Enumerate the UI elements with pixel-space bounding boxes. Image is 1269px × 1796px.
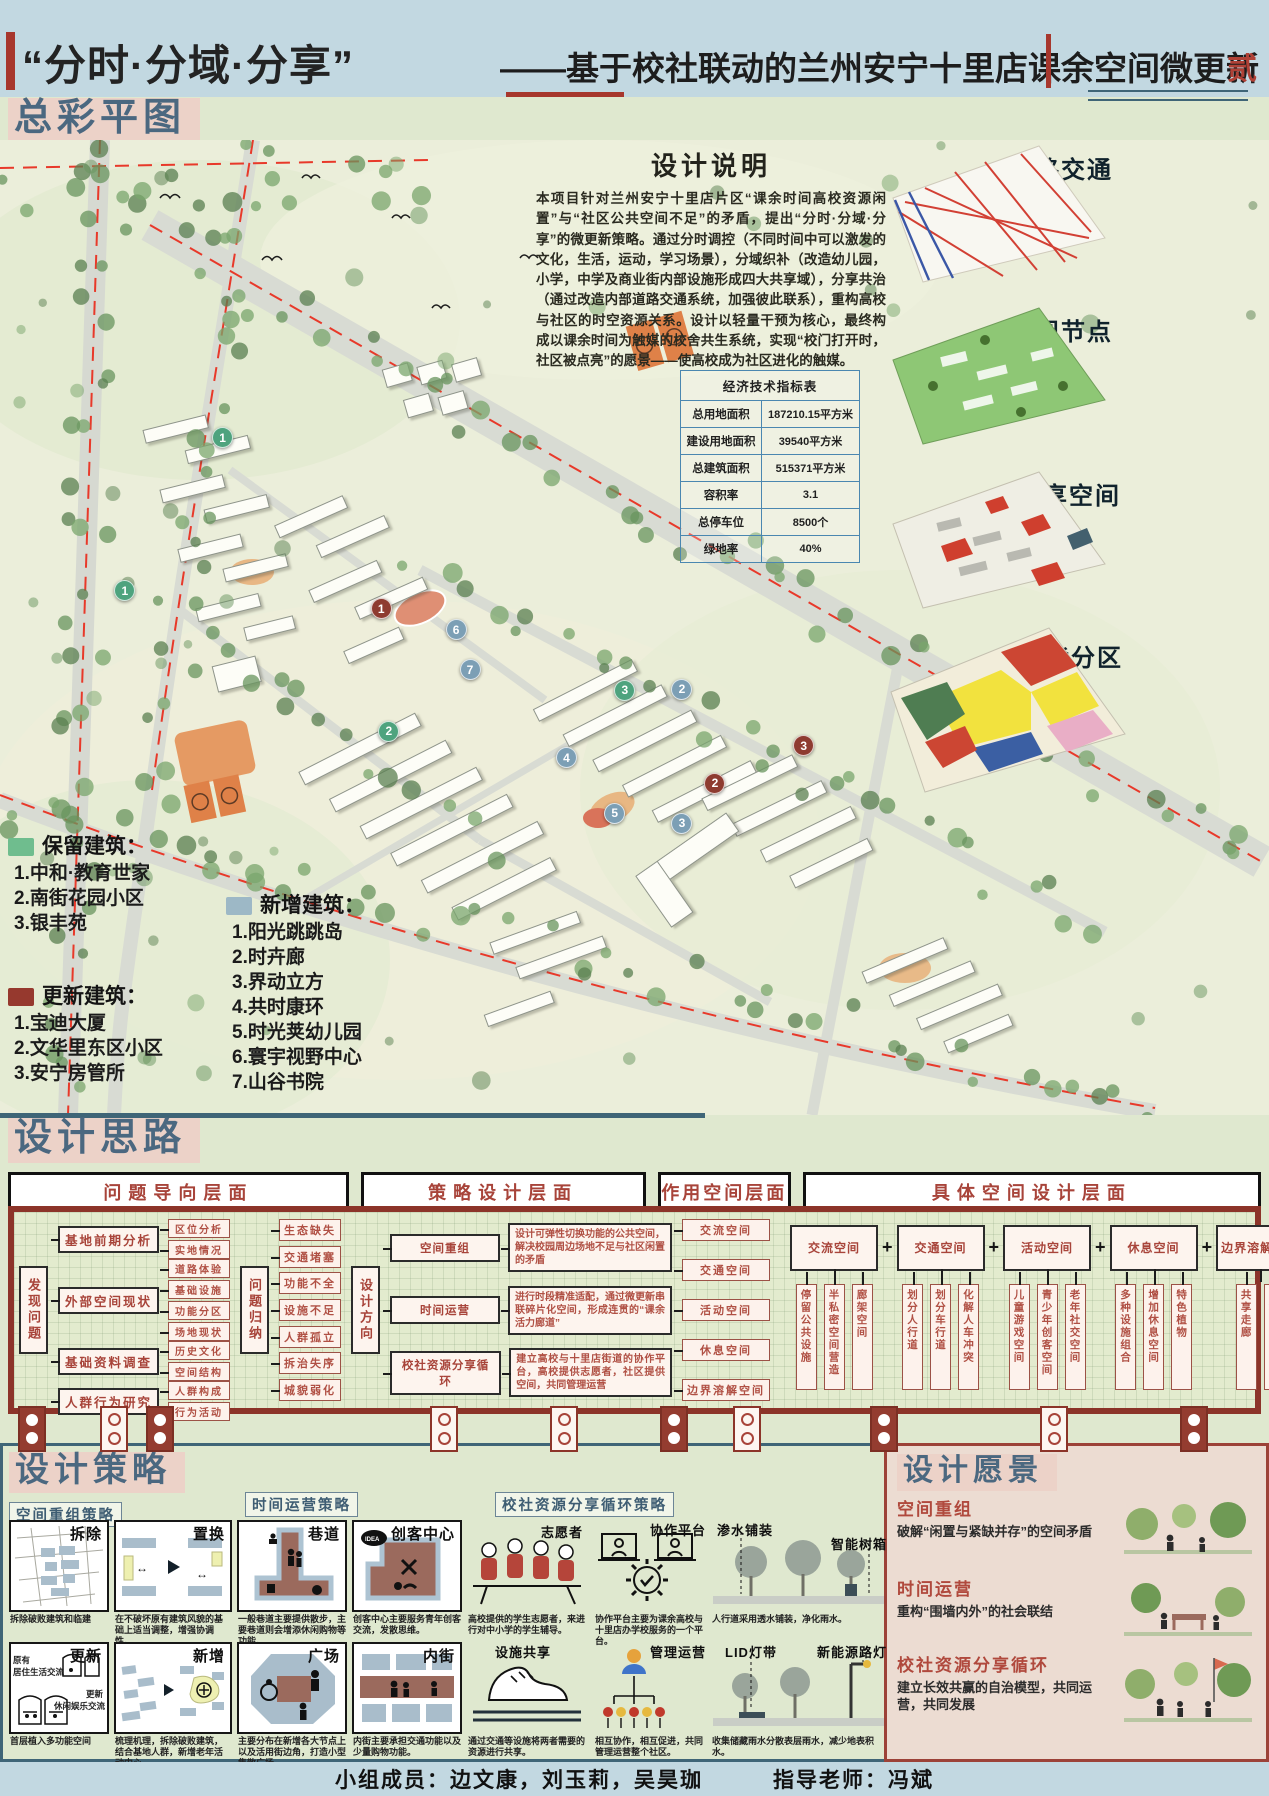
flow-strategy-desc: 设计可弹性切换功能的公共空间，解决校园周边场地不足与社区闲置的矛盾: [508, 1223, 672, 1272]
credits-bar: 小组成员：边文康，刘玉莉，吴昊珈 指导老师：冯斌: [0, 1762, 1269, 1796]
flow-family-label: 边界溶解空间: [1216, 1225, 1269, 1271]
plus-sign: +: [989, 1237, 1000, 1258]
svg-text:IDEA: IDEA: [365, 1537, 380, 1543]
title-accent-bar: [6, 32, 15, 90]
flow-group-item: 行为活动: [168, 1402, 230, 1421]
ribbon-tab: [100, 1406, 128, 1452]
card-demolish: 拆除: [9, 1520, 109, 1612]
plan-marker-new: 3: [671, 813, 692, 834]
vision-item: 时间运营 重构“围墙内外”的社会联结: [897, 1580, 1258, 1620]
ribbon-tab: [1180, 1406, 1208, 1452]
ribbon-tab: [430, 1406, 458, 1452]
flow-problem: 设施不足: [279, 1299, 341, 1321]
page-number-badge: 贰: [1227, 44, 1257, 88]
flow-group-item: 区位分析: [168, 1219, 230, 1238]
flow-family-item: 停留公共设施: [796, 1284, 817, 1390]
card-caption: 人行道采用透水铺装，净化雨水。: [711, 1612, 889, 1642]
advisor: 指导老师：冯斌: [773, 1764, 934, 1794]
flow-family-item: 青少年创客空间: [1037, 1284, 1058, 1390]
flow-spaces: 交流空间 交通空间 活动空间 休息空间 边界溶解空间: [682, 1219, 770, 1401]
street-section-1: 渗水铺装 智能树箱: [711, 1520, 889, 1612]
flow-family-item: 增加休息空间: [1143, 1284, 1164, 1390]
flow-family-item: 口袋广场: [1264, 1284, 1269, 1390]
card-title: 广场: [308, 1645, 340, 1666]
bottom-section: 设计策略 空间重组策略 时间运营策略 校社资源分享循环策略 拆除: [0, 1443, 1269, 1762]
flow-summarize: 问题归纳: [240, 1266, 269, 1354]
flow-space: 交流空间: [682, 1219, 770, 1241]
sublabel-time-operation: 时间运营策略: [245, 1492, 358, 1517]
card-caption: 梳理机理，拆除破败建筑，结合基地人群，新增老年活动中心。: [114, 1734, 232, 1763]
card-title: 创客中心: [391, 1523, 455, 1544]
treebox-label: 智能树箱: [831, 1534, 887, 1553]
card-title: 内街: [423, 1645, 455, 1666]
plan-marker-renew: 3: [793, 735, 814, 756]
management-illustration: 管理运营: [594, 1642, 706, 1734]
plan-marker-renew: 2: [704, 773, 725, 794]
card-renew: 更新 原有 居住生活交流 更新 休闲娱乐交流: [9, 1642, 109, 1734]
concept-flow-diagram: 发现问题 基地前期分析 区位分析 实地情况 外部空间现状 道路体验 基础设施 功…: [8, 1206, 1261, 1414]
card-title: 拆除: [70, 1523, 102, 1544]
ribbon-tab: [870, 1406, 898, 1452]
plan-marker-retain: 1: [114, 580, 135, 601]
volunteer-illustration: 志愿者: [467, 1520, 589, 1612]
flow-group-item: 人群构成: [168, 1381, 230, 1400]
flow-discover: 发现问题: [19, 1266, 48, 1354]
card-title: 新增: [193, 1645, 225, 1666]
ribbon-tab: [660, 1406, 688, 1452]
plan-marker-retain: 1: [212, 427, 233, 448]
flow-problem: 拆治失序: [279, 1352, 341, 1374]
flow-family-item: 半私密空间营造: [824, 1284, 845, 1390]
card-alley: 巷道: [237, 1520, 347, 1612]
strategy-panel: 设计策略 空间重组策略 时间运营策略 校社资源分享循环策略 拆除: [0, 1443, 884, 1762]
card-caption: 创客中心主要服务青年创客交流，发散思维。: [352, 1612, 462, 1642]
ribbon-tab: [18, 1406, 46, 1452]
ribbon-tab: [146, 1406, 174, 1452]
card-caption: 相互协作，相互促进，共同管理运营整个社区。: [594, 1734, 706, 1763]
plan-marker-new: 7: [460, 659, 481, 680]
plan-marker-new: 6: [446, 619, 467, 640]
plan-marker-retain: 2: [378, 721, 399, 742]
flow-family-item: 廊架空间: [852, 1284, 873, 1390]
flow-problem: 功能不全: [279, 1272, 341, 1294]
flow-strategy-label: 校社资源分享循环: [390, 1351, 501, 1395]
card-caption: 首层植入多功能空间: [9, 1734, 109, 1763]
card-add: 新增: [114, 1642, 232, 1734]
flow-group-item: 功能分区: [168, 1301, 230, 1320]
plus-sign: +: [1202, 1237, 1213, 1258]
card-maker-center: 创客中心 IDEA: [352, 1520, 462, 1612]
flow-space: 交通空间: [682, 1259, 770, 1281]
plan-marker-new: 5: [604, 803, 625, 824]
flow-problem: 交通堵塞: [279, 1246, 341, 1268]
flow-family-item: 多种设施组合: [1115, 1284, 1136, 1390]
flow-strategy-label: 时间运营: [390, 1296, 500, 1324]
ribbon-tab: [550, 1406, 578, 1452]
card-caption: 协作平台主要为课余高校与十里店办学校服务的一个平台。: [594, 1612, 706, 1642]
card-caption: 一般巷道主要提供散步，主要巷道则会增添休闲购物等功能。: [237, 1612, 347, 1642]
title-bar: “分时·分域·分享” ——基于校社联动的兰州安宁十里店课余空间微更新 贰: [0, 30, 1269, 96]
plan-markers: 1116723243253: [0, 140, 1269, 1115]
section-header-masterplan: 总彩平图: [8, 98, 200, 143]
flow-group-item: 实地情况: [168, 1240, 230, 1259]
flow-group-item: 历史文化: [168, 1341, 230, 1360]
vision-desc: 破解“闲置与紧缺并存”的空间矛盾: [897, 1523, 1107, 1541]
title-red-vbar: [1046, 34, 1051, 88]
svg-text:↔: ↔: [136, 1561, 148, 1575]
card-caption: 通过交通等设施将两者需要的资源进行共享。: [467, 1734, 589, 1763]
title-red-underline: [506, 92, 624, 97]
card-caption: 在不破坏原有建筑风貌的基础上适当调整，增强协调性。: [114, 1612, 232, 1642]
card-caption: 拆除破败建筑和临建: [9, 1612, 109, 1642]
platform-label: 协作平台: [650, 1520, 706, 1539]
flow-family-label: 交通空间: [897, 1225, 985, 1271]
flow-family-label: 休息空间: [1110, 1225, 1198, 1271]
vision-illustration-2: [1118, 1574, 1258, 1644]
flow-problem: 生态缺失: [279, 1219, 341, 1241]
solar-label: 新能源路灯: [817, 1642, 887, 1661]
flow-family-item: 划分车行道: [930, 1284, 951, 1390]
card-replace: 置换 ↔ ↔: [114, 1520, 232, 1612]
flow-direction: 设计方向: [351, 1266, 380, 1354]
plan-marker-renew: 1: [371, 598, 392, 619]
poster-title-main: “分时·分域·分享”: [22, 32, 354, 93]
ribbon-tab: [733, 1406, 761, 1452]
facility-share-label: 设施共享: [495, 1642, 551, 1661]
flow-group-item: 空间结构: [168, 1362, 230, 1381]
flow-family-item: 老年社交空间: [1065, 1284, 1086, 1390]
card-plaza: 广场: [237, 1642, 347, 1734]
flow-groups: 基地前期分析 区位分析 实地情况 外部空间现状 道路体验 基础设施 功能分区 场…: [58, 1219, 230, 1401]
vision-illustration-3: [1118, 1650, 1258, 1736]
vision-item: 校社资源分享循环 建立长效共赢的自治模型，共同运营，共同发展: [897, 1656, 1258, 1714]
flow-families: 交流空间 停留公共设施 半私密空间营造 廊架空间 + 交通空间 划分人行道 划分…: [790, 1219, 1269, 1401]
team-members: 小组成员：边文康，刘玉莉，吴昊珈: [335, 1764, 703, 1794]
vision-desc: 建立长效共赢的自治模型，共同运营，共同发展: [897, 1679, 1107, 1714]
section-header-strategy: 设计策略: [9, 1452, 185, 1493]
flow-family-item: 化解人车冲突: [958, 1284, 979, 1390]
flow-problem: 城貌弱化: [279, 1379, 341, 1401]
flow-strategies: 空间重组 设计可弹性切换功能的公共空间，解决校园周边场地不足与社区闲置的矛盾 时…: [390, 1219, 672, 1401]
flow-group: 基础资料调查: [58, 1348, 159, 1375]
flow-family-item: 划分人行道: [902, 1284, 923, 1390]
vision-desc: 重构“围墙内外”的社会联结: [897, 1603, 1107, 1621]
flow-family-label: 交流空间: [790, 1225, 878, 1271]
permeable-label: 渗水铺装: [717, 1520, 773, 1539]
street-section-2: LID灯带 新能源路灯: [711, 1642, 889, 1734]
card-caption: 主要分布在新增各大节点上以及活用街边角，打造小型集散广场。: [237, 1734, 347, 1763]
card-caption: 收集储藏雨水分散表层雨水，减少地表积水。: [711, 1734, 889, 1763]
title-teal-underline: [1088, 90, 1248, 101]
flow-problem: 人群孤立: [279, 1326, 341, 1348]
flow-strategy-desc: 进行时段精准适配，通过微更新串联碎片化空间，形成连贯的“课余活力廊道”: [508, 1286, 672, 1335]
flow-group: 基地前期分析: [58, 1226, 159, 1253]
card-title: 更新: [70, 1645, 102, 1666]
ribbon-tab: [1040, 1406, 1068, 1452]
plan-marker-new: 4: [556, 747, 577, 768]
poster: “分时·分域·分享” ——基于校社联动的兰州安宁十里店课余空间微更新 贰 总彩平…: [0, 0, 1269, 1796]
flow-group-item: 道路体验: [168, 1259, 230, 1278]
vision-illustration-1: [1118, 1494, 1258, 1568]
card-inner-street: 内街: [352, 1642, 462, 1734]
flow-family-label: 活动空间: [1003, 1225, 1091, 1271]
flow-group: 外部空间现状: [58, 1287, 159, 1314]
platform-illustration: 协作平台: [594, 1520, 706, 1612]
flow-group-item: 基础设施: [168, 1280, 230, 1299]
management-label: 管理运营: [650, 1642, 706, 1661]
svg-text:↔: ↔: [196, 1567, 208, 1581]
poster-title-sub: ——基于校社联动的兰州安宁十里店课余空间微更新: [500, 42, 1259, 90]
flow-space: 活动空间: [682, 1299, 770, 1321]
card-title: 巷道: [308, 1523, 340, 1544]
flow-family-item: 共享走廊: [1236, 1284, 1257, 1390]
section-header-concept: 设计思路: [8, 1118, 200, 1163]
card-caption: 高校提供的学生志愿者，来进行对中小学的学生辅导。: [467, 1612, 589, 1642]
flow-family-item: 儿童游戏空间: [1009, 1284, 1030, 1390]
volunteer-label: 志愿者: [541, 1522, 583, 1541]
plus-sign: +: [882, 1237, 893, 1258]
plan-marker-retain: 3: [614, 680, 635, 701]
sublabel-share-cycle: 校社资源分享循环策略: [495, 1492, 674, 1517]
flow-family-item: 特色植物: [1171, 1284, 1192, 1390]
plan-marker-new: 2: [671, 679, 692, 700]
flow-space: 休息空间: [682, 1339, 770, 1361]
facility-share-illustration: 设施共享: [467, 1642, 589, 1734]
lid-label: LID灯带: [725, 1642, 777, 1661]
flow-strategy-desc: 建立高校与十里店街道的协作平台，高校提供志愿者，社区提供空间，共同管理运营: [509, 1348, 672, 1397]
vision-item: 空间重组 破解“闲置与紧缺并存”的空间矛盾: [897, 1500, 1258, 1540]
flow-group-item: 场地现状: [168, 1322, 230, 1341]
flow-problems: 生态缺失 交通堵塞 功能不全 设施不足 人群孤立 拆治失序 城貌弱化: [279, 1219, 341, 1401]
card-caption: 内街主要承担交通功能以及少量购物功能。: [352, 1734, 462, 1763]
card-title: 置换: [193, 1523, 225, 1544]
plus-sign: +: [1095, 1237, 1106, 1258]
section-header-vision: 设计愿景: [897, 1454, 1057, 1491]
flow-strategy-label: 空间重组: [390, 1234, 500, 1262]
masterplan-area: 设计说明 本项目针对兰州安宁十里店片区“课余时间高校资源闲置”与“社区公共空间不…: [0, 140, 1269, 1115]
vision-panel: 设计愿景 空间重组 破解“闲置与紧缺并存”的空间矛盾 时间运营 重构“围墙内外”…: [884, 1443, 1269, 1762]
flow-space: 边界溶解空间: [682, 1379, 770, 1401]
